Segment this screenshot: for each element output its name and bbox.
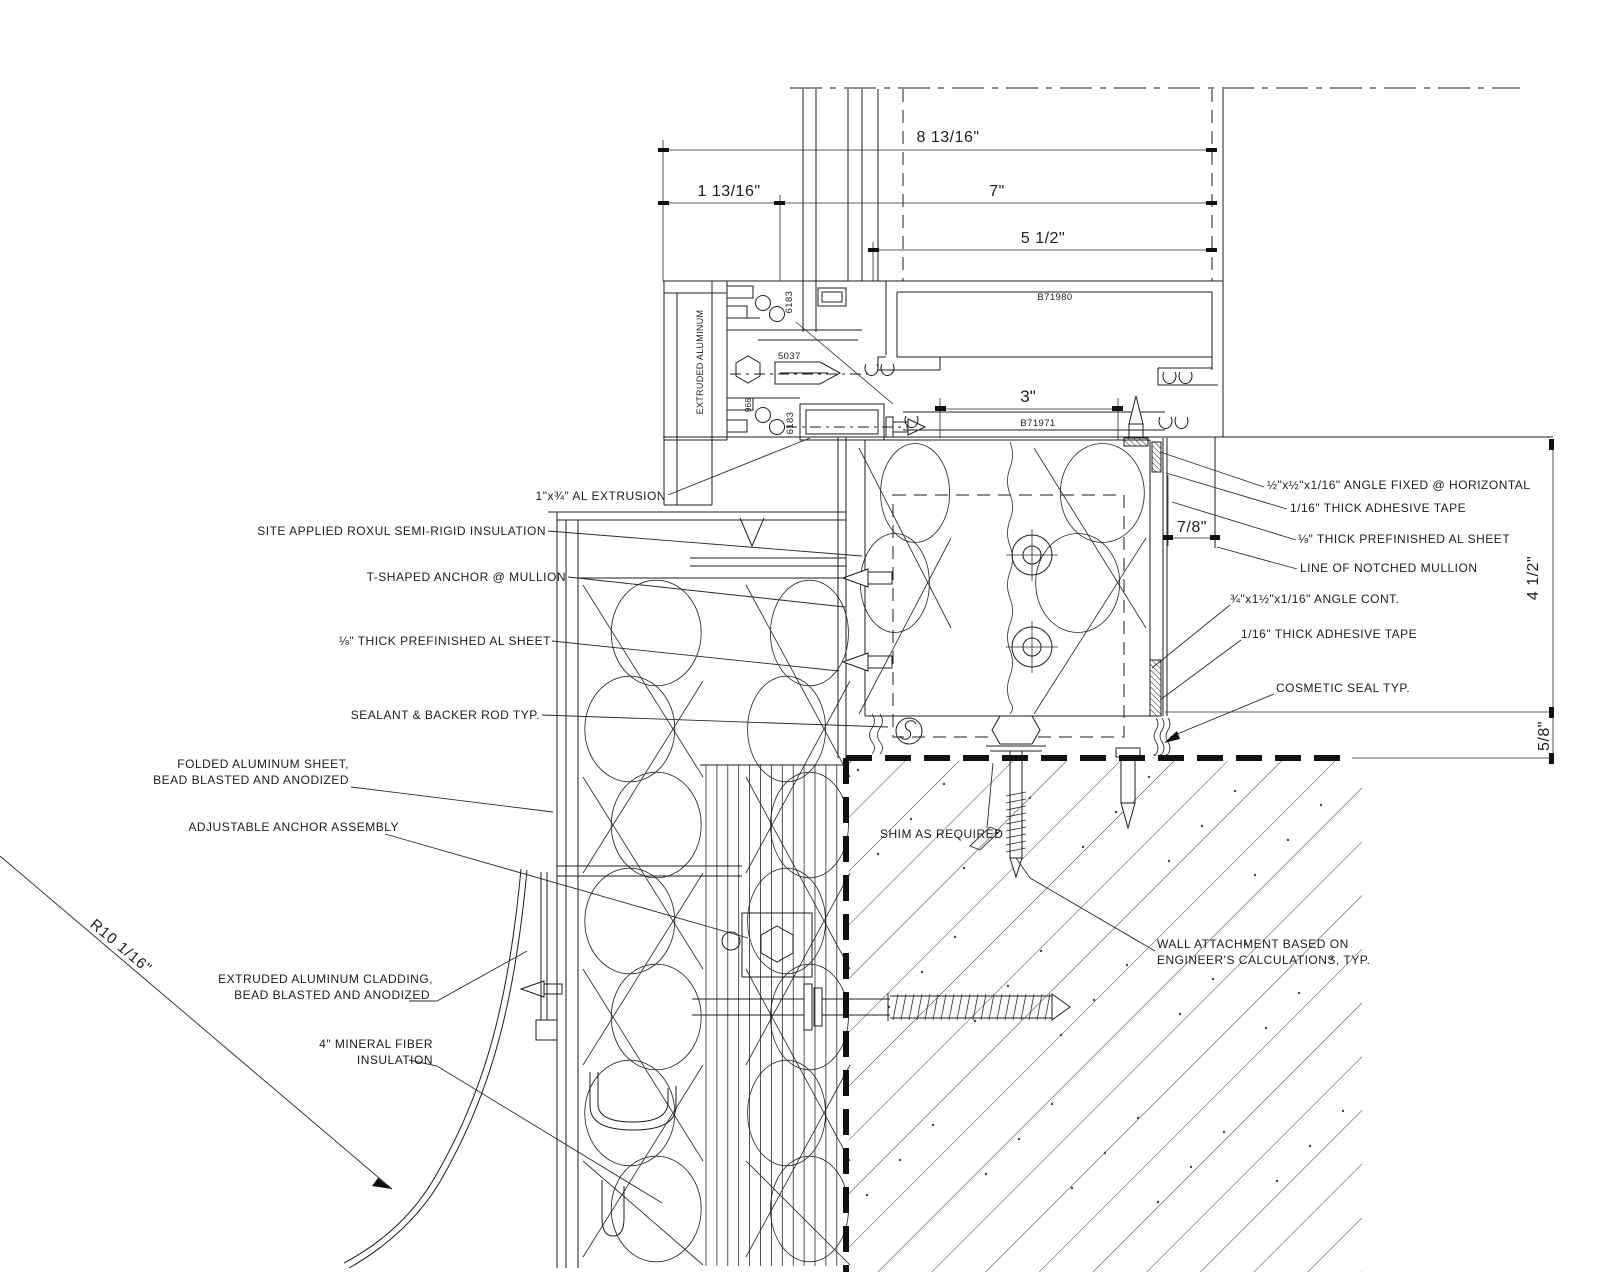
dim-5-8: 5/8" (1536, 721, 1553, 751)
label-tape-bottom: 1/16" THICK ADHESIVE TAPE (1241, 627, 1417, 641)
label-wall-attachment-1: WALL ATTACHMENT BASED ON (1157, 937, 1349, 951)
dim-4-1-2: 4 1/2" (1525, 556, 1542, 600)
label-notched-mullion: LINE OF NOTCHED MULLION (1300, 561, 1478, 575)
mineral-fiber-insulation-hatch (583, 580, 703, 1265)
glazing-lines (790, 88, 1520, 437)
label-cladding-2: BEAD BLASTED AND ANODIZED (234, 988, 430, 1002)
label-angle-fixed: ½"x½"x1/16" ANGLE FIXED @ HORIZONTAL (1267, 478, 1530, 492)
part-extruded-aluminum: EXTRUDED ALUMINUM (695, 310, 705, 415)
part-b71980: B71980 (1037, 292, 1072, 303)
dim-7: 7" (989, 183, 1005, 200)
cad-detail-drawing: 8 13/16" 1 13/16" 7" 5 1/2" 3" 7/8" 4 1/… (0, 0, 1600, 1280)
dim-1-13-16: 1 13/16" (697, 183, 760, 200)
part-966: 966 (744, 398, 753, 412)
roxul-insulation-hatch (1034, 444, 1146, 715)
label-sheet-left: ⅛" THICK PREFINISHED AL SHEET (339, 634, 551, 648)
part-6183-top: 6183 (784, 291, 795, 314)
label-al-extrusion: 1"x¾" AL EXTRUSION (536, 489, 666, 503)
label-shim: SHIM AS REQUIRED (880, 827, 1003, 841)
part-6183-bottom: 6183 (785, 412, 796, 435)
label-mineral-1: 4" MINERAL FIBER (319, 1037, 433, 1051)
label-folded-1: FOLDED ALUMINUM SHEET, (177, 757, 349, 771)
label-adjustable-anchor: ADJUSTABLE ANCHOR ASSEMBLY (188, 820, 399, 834)
mullion-box (838, 437, 1215, 758)
mineral-fiber-insulation-hatch (746, 580, 850, 1265)
dim-radius: R10 1/16" (87, 916, 156, 977)
label-angle-cont: ¾"x1½"x1/16" ANGLE CONT. (1230, 592, 1400, 606)
drawing-canvas: 8 13/16" 1 13/16" 7" 5 1/2" 3" 7/8" 4 1/… (0, 0, 1600, 1280)
dim-8-13-16: 8 13/16" (916, 129, 979, 146)
label-mineral-2: INSULATION (357, 1053, 433, 1067)
roxul-insulation-hatch (859, 444, 951, 715)
frame-assembly (663, 281, 1553, 505)
label-t-anchor: T-SHAPED ANCHOR @ MULLION (367, 570, 566, 584)
label-folded-2: BEAD BLASTED AND ANODIZED (153, 773, 349, 787)
dim-5-1-2: 5 1/2" (1021, 230, 1065, 247)
dim-3: 3" (1020, 387, 1036, 406)
part-5037: 5037 (778, 351, 801, 362)
label-cladding-1: EXTRUDED ALUMINUM CLADDING, (218, 972, 433, 986)
label-cosmetic-seal: COSMETIC SEAL TYP. (1276, 681, 1410, 695)
label-tape-top: 1/16" THICK ADHESIVE TAPE (1290, 501, 1466, 515)
dim-7-8: 7/8" (1177, 519, 1207, 536)
label-sheet-right: ⅛" THICK PREFINISHED AL SHEET (1298, 532, 1510, 546)
label-sealant: SEALANT & BACKER ROD TYP. (351, 708, 540, 722)
part-b71971: B71971 (1020, 418, 1055, 429)
label-wall-attachment-2: ENGINEER'S CALCULATIONS, TYP. (1157, 953, 1371, 967)
label-roxul: SITE APPLIED ROXUL SEMI-RIGID INSULATION (257, 524, 546, 538)
